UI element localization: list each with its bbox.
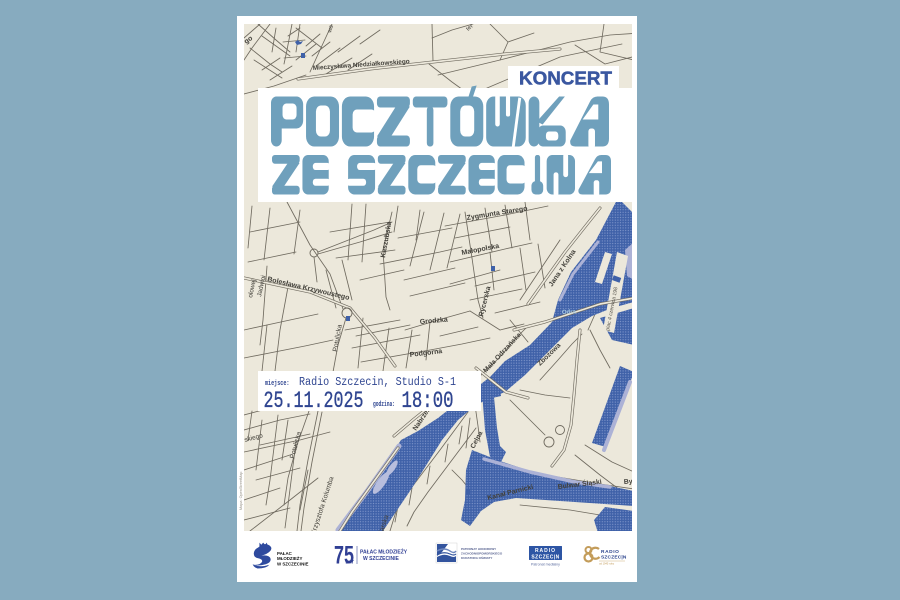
svg-text:SZCZEC|N: SZCZEC|N	[601, 555, 627, 561]
svg-text:RADIO: RADIO	[535, 548, 556, 554]
svg-text:ZACHODNIOPOMORSKIEGO: ZACHODNIOPOMORSKIEGO	[461, 551, 503, 555]
svg-text:miejsce:: miejsce:	[265, 380, 290, 388]
svg-text:Mapa: OpenStreetMap: Mapa: OpenStreetMap	[239, 472, 243, 510]
svg-text:Byto: Byto	[624, 478, 637, 486]
svg-text:75: 75	[334, 542, 354, 570]
svg-text:RADIO: RADIO	[601, 549, 619, 555]
svg-text:18:00: 18:00	[402, 388, 454, 414]
svg-text:od 1945 roku: od 1945 roku	[599, 562, 615, 566]
svg-text:Odra: Odra	[562, 309, 577, 316]
svg-text:Patronat medialny: Patronat medialny	[531, 563, 560, 567]
svg-text:PATRONAT HONOROWY: PATRONAT HONOROWY	[461, 547, 496, 551]
svg-text:SZCZEC|N: SZCZEC|N	[531, 555, 559, 561]
svg-text:W SZCZECINIE: W SZCZECINIE	[363, 556, 399, 562]
svg-text:godzina:: godzina:	[373, 401, 395, 409]
svg-text:KONCERT: KONCERT	[519, 69, 612, 89]
svg-text:KURATORA OŚWIATY: KURATORA OŚWIATY	[461, 555, 492, 560]
svg-text:25.11.2025: 25.11.2025	[264, 388, 364, 414]
svg-text:PAŁAC MŁODZIEŻY: PAŁAC MŁODZIEŻY	[360, 549, 408, 556]
svg-text:LAT: LAT	[346, 560, 355, 565]
svg-text:W SZCZECINIE: W SZCZECINIE	[277, 561, 309, 566]
